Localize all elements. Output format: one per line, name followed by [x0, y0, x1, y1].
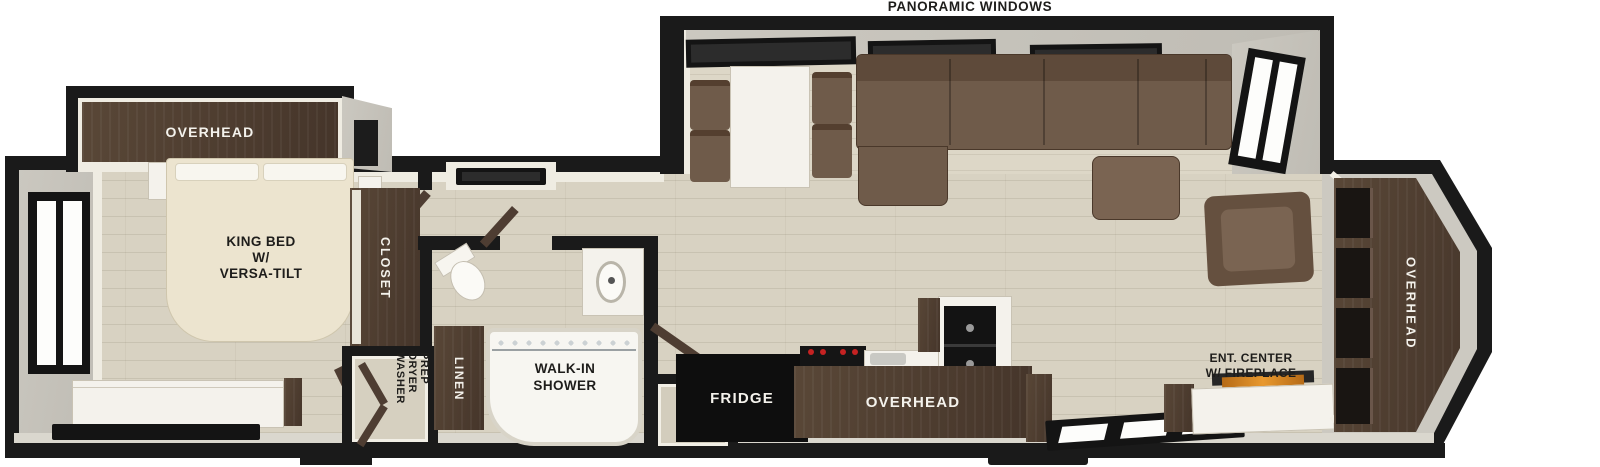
shower-glass-rail — [492, 349, 636, 351]
oven-knob-icon — [966, 324, 974, 332]
fridge-label-wrap: FRIDGE — [676, 354, 808, 442]
ent-center-side-cabinet — [1164, 384, 1194, 432]
burner-icon — [852, 349, 858, 355]
entry-step — [988, 452, 1088, 465]
bedroom-overhead-label: OVERHEAD — [166, 124, 255, 140]
kitchen-sink-icon — [870, 353, 906, 365]
shower-glass-icon — [494, 338, 634, 348]
linen-label: LINEN — [452, 357, 466, 401]
bathroom-wall-right — [644, 236, 658, 452]
ent-center-label: ENT. CENTER W/ FIREPLACE — [1178, 350, 1324, 382]
closet-label-wrap: CLOSET — [352, 196, 418, 340]
shower-label: WALK-IN SHOWER — [492, 358, 638, 396]
burner-icon — [820, 349, 826, 355]
laundry-line-washer: WASHER — [394, 352, 406, 444]
fridge-label: FRIDGE — [710, 390, 774, 407]
rear-cabinet-cubby — [1336, 248, 1373, 298]
recliner — [1204, 191, 1315, 286]
kitchen-overhead-label-wrap: OVERHEAD — [794, 366, 1032, 438]
tv — [52, 424, 260, 440]
sofa-armrest-seam — [1205, 59, 1207, 145]
dinette-chair — [812, 124, 852, 178]
stabilizer-stub — [300, 456, 372, 465]
bedroom-overhead-cabinet: OVERHEAD — [82, 102, 338, 162]
dinette-chair — [690, 130, 730, 182]
front-window-pane — [63, 201, 82, 365]
laundry-line-dryer: DRYER — [406, 352, 418, 444]
dinette-chair — [812, 72, 852, 124]
king-bed-label: KING BED W/ VERSA-TILT — [186, 222, 336, 294]
bed-pillow — [175, 163, 259, 181]
dinette-chair — [690, 80, 730, 130]
ent-center-line2: W/ FIREPLACE — [1206, 366, 1297, 381]
wall-bedroom-divider-upper — [418, 160, 432, 190]
king-bed-line3: VERSA-TILT — [220, 266, 303, 282]
shower-line1: WALK-IN — [535, 360, 596, 377]
laundry-label: WASHER DRYER PREP — [394, 352, 434, 444]
sofa-seam — [1137, 59, 1139, 145]
linen-label-wrap: LINEN — [436, 330, 482, 428]
sofa-back-section — [856, 54, 1232, 150]
bathroom-vanity — [582, 248, 644, 316]
laundry-line-prep: PREP — [418, 352, 430, 444]
dresser — [72, 380, 284, 428]
king-bed-line1: KING BED — [226, 234, 295, 250]
wall-top-left-segment — [5, 156, 71, 170]
ent-center-cabinet — [1191, 384, 1335, 435]
burner-icon — [840, 349, 846, 355]
oven-divider — [944, 344, 996, 347]
bed-pillow — [263, 163, 347, 181]
panoramic-windows-callout: PANORAMIC WINDOWS — [850, 0, 1090, 15]
pantry-strip — [918, 298, 940, 352]
sofa-seam — [1043, 59, 1045, 145]
rv-floorplan: OVERHEAD KING BED W/ VERSA-TILT CLOSET W… — [0, 0, 1600, 467]
recliner-seat — [1220, 206, 1295, 272]
vanity-faucet-icon — [608, 277, 615, 284]
rear-cabinet-cubby — [1336, 188, 1373, 238]
door-side-window-pane — [1120, 419, 1170, 439]
sofa-chaise — [858, 146, 948, 206]
dresser-top-line — [73, 387, 283, 388]
rear-cabinet-cubby — [1336, 308, 1373, 358]
panoramic-window-glass — [691, 41, 851, 62]
hall-window-glass — [462, 172, 540, 181]
dinette-table — [730, 66, 810, 188]
bedside-cabinet — [284, 378, 302, 426]
rear-overhead-label: OVERHEAD — [1404, 257, 1419, 350]
panoramic-windows-label: PANORAMIC WINDOWS — [888, 0, 1052, 14]
panoramic-window-icon — [686, 36, 857, 68]
rear-cabinet-cubby — [1336, 368, 1373, 424]
wall-front-left — [5, 156, 19, 458]
king-bed-line2: W/ — [252, 250, 269, 266]
ottoman — [1092, 156, 1180, 220]
kitchen-overhead-label: OVERHEAD — [866, 394, 961, 411]
rear-overhead-label-wrap: OVERHEAD — [1396, 236, 1426, 370]
front-window-icon — [28, 192, 90, 374]
closet-label: CLOSET — [378, 237, 392, 300]
hall-window-icon — [456, 168, 546, 185]
door-side-window-pane — [1058, 424, 1108, 444]
burner-icon — [808, 349, 814, 355]
shower-line2: SHOWER — [533, 377, 596, 394]
bedroom-slide-end-window-icon — [354, 120, 378, 166]
front-window-pane — [37, 201, 56, 365]
sofa-seam — [949, 59, 951, 145]
ent-center-line1: ENT. CENTER — [1209, 351, 1292, 366]
